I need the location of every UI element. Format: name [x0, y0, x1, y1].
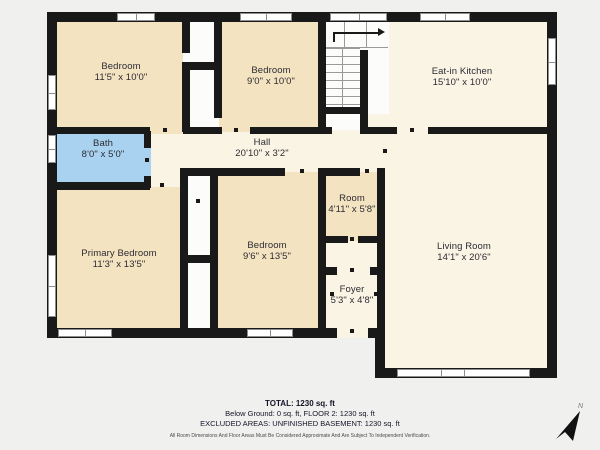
room-name: Primary Bedroom: [81, 248, 156, 259]
wall-segment: [360, 50, 368, 134]
door-marker: [145, 158, 149, 162]
door-marker: [196, 199, 200, 203]
wall-segment: [182, 62, 222, 70]
wall-segment: [47, 182, 150, 190]
window: [247, 329, 293, 337]
room-name: Living Room: [437, 241, 491, 252]
wall-segment: [320, 107, 368, 114]
staircase-line: [342, 48, 343, 108]
area-summary: TOTAL: 1230 sq. ft Below Ground: 0 sq. f…: [0, 399, 600, 440]
window: [48, 255, 56, 317]
room-dims: 5'3" x 4'8": [331, 295, 374, 306]
window: [48, 75, 56, 110]
room-label-hall: Hall 20'10" x 3'2": [235, 137, 288, 159]
wall-segment: [250, 127, 332, 134]
wall-segment: [180, 168, 188, 328]
window: [420, 13, 470, 21]
wall-segment: [47, 127, 150, 134]
window: [117, 13, 155, 21]
room-name: Eat-in Kitchen: [432, 66, 493, 77]
room-dims: 11'5" x 10'0": [95, 72, 148, 83]
wall-segment: [377, 168, 385, 328]
room-label-bedroom-1: Bedroom 11'5" x 10'0": [95, 61, 148, 83]
staircase-direction-arrow-tail: [333, 32, 335, 42]
staircase-treads: [326, 48, 360, 108]
room-name: Bedroom: [243, 240, 291, 251]
wall-segment: [322, 236, 348, 243]
wall-segment: [144, 176, 151, 188]
wall-segment: [370, 267, 382, 275]
room-name: Room: [328, 193, 375, 204]
door-marker: [268, 130, 272, 134]
wall-segment: [182, 70, 190, 132]
door-marker: [234, 128, 238, 132]
staircase-direction-arrow: [334, 32, 380, 34]
staircase-line: [326, 47, 388, 48]
door-marker: [163, 128, 167, 132]
room-label-primary-bedroom: Primary Bedroom 11'3" x 13'5": [81, 248, 156, 270]
room-dims: 14'1" x 20'6": [437, 252, 491, 263]
door-marker: [350, 237, 354, 241]
disclaimer-text: All Room Dimensions And Floor Areas Must…: [0, 433, 600, 440]
compass-n-label: N: [578, 403, 583, 410]
floor-breakdown-text: Below Ground: 0 sq. ft, FLOOR 2: 1230 sq…: [0, 409, 600, 419]
room-dims: 8'0" x 5'0": [82, 149, 125, 160]
door-marker: [300, 169, 304, 173]
door-marker: [374, 292, 378, 296]
window: [397, 369, 530, 377]
wall-segment: [183, 127, 222, 134]
staircase-arrowhead-icon: [378, 28, 385, 36]
room-dims: 4'11" x 5'8": [328, 204, 375, 215]
wall-segment: [358, 236, 382, 243]
wall-segment: [180, 255, 218, 263]
room-name: Hall: [235, 137, 288, 148]
wall-segment: [182, 22, 190, 53]
window: [330, 13, 387, 21]
wall-segment: [180, 168, 285, 176]
room-name: Bedroom: [95, 61, 148, 72]
door-marker: [410, 128, 414, 132]
room-label-bedroom-2: Bedroom 9'0" x 10'0": [247, 65, 295, 87]
window: [48, 135, 56, 163]
wall-segment: [322, 267, 337, 275]
window: [240, 13, 292, 21]
north-arrow-icon: [552, 403, 590, 445]
room-dims: 20'10" x 3'2": [235, 148, 288, 159]
room-label-bath: Bath 8'0" x 5'0": [82, 138, 125, 160]
wall-segment: [318, 22, 326, 134]
excluded-areas-text: EXCLUDED AREAS: UNFINISHED BASEMENT: 123…: [0, 419, 600, 429]
north-compass: N: [552, 403, 590, 445]
room-label-living-room: Living Room 14'1" x 20'6": [437, 241, 491, 263]
room-name: Foyer: [331, 284, 374, 295]
room-dims: 11'3" x 13'5": [81, 259, 156, 270]
wall-segment: [428, 127, 547, 134]
door-marker: [350, 329, 354, 333]
door-marker: [350, 268, 354, 272]
wall-segment: [144, 131, 151, 148]
door-marker: [160, 183, 164, 187]
window: [548, 38, 556, 85]
door-marker: [365, 169, 369, 173]
wall-segment: [361, 127, 397, 134]
wall-segment: [210, 176, 218, 328]
room-name: Bedroom: [247, 65, 295, 76]
room-dims: 9'0" x 10'0": [247, 76, 295, 87]
staircase-line: [344, 22, 345, 47]
room-label-eat-in-kitchen: Eat-in Kitchen 15'10" x 10'0": [432, 66, 493, 88]
wall-segment: [214, 22, 222, 118]
room-dims: 15'10" x 10'0": [432, 77, 493, 88]
room-label-foyer: Foyer 5'3" x 4'8": [331, 284, 374, 306]
wall-segment: [318, 168, 326, 328]
room-dims: 9'6" x 13'5": [243, 251, 291, 262]
room-name: Bath: [82, 138, 125, 149]
room-label-room: Room 4'11" x 5'8": [328, 193, 375, 215]
door-marker: [383, 149, 387, 153]
floorplan-canvas: Bedroom 11'5" x 10'0" Bedroom 9'0" x 10'…: [0, 0, 600, 450]
room-label-bedroom-3: Bedroom 9'6" x 13'5": [243, 240, 291, 262]
staircase-line: [366, 22, 367, 47]
window: [58, 329, 112, 337]
total-area-text: TOTAL: 1230 sq. ft: [0, 399, 600, 409]
